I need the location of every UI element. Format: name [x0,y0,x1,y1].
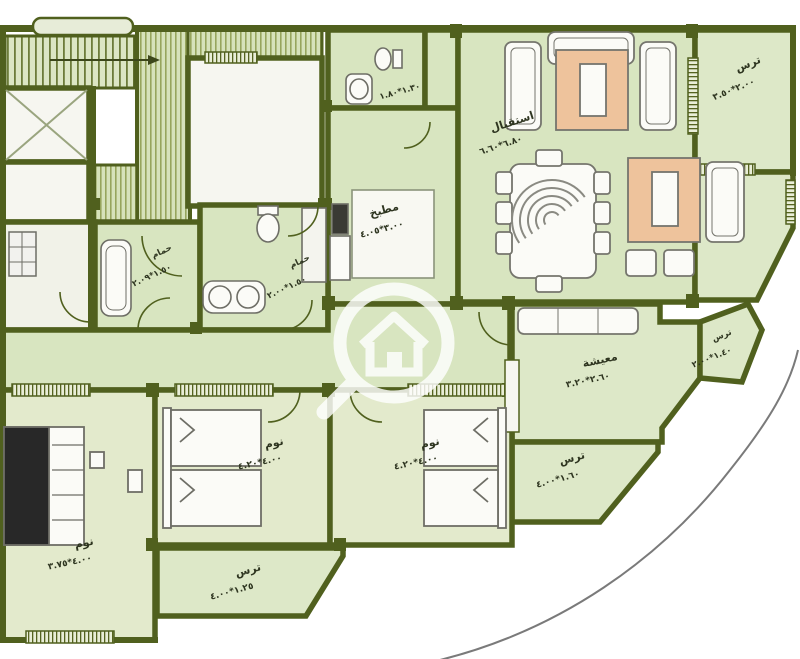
toilet-tank [393,50,402,68]
stair-treads [5,36,135,88]
pillar [146,383,159,397]
pillar [146,538,158,551]
kitchen-counter [330,236,350,280]
dining-chair [536,276,562,292]
pillar [502,296,515,310]
dining-table [510,164,596,278]
room-bath-top [328,30,425,108]
pillar [334,538,346,551]
pillar [686,294,699,308]
stool [664,250,694,276]
pillar [450,24,462,38]
window-bed-left-top [12,384,90,396]
dining-chair [594,202,610,224]
french-door-bed-right [505,360,519,432]
stool [626,250,656,276]
dining-chair [536,150,562,166]
coffee-table-top [652,172,678,226]
dining-chair [496,202,512,224]
pillar [322,296,335,310]
pillar [190,322,202,334]
pillar [320,100,332,112]
duct-shaft-top [425,30,458,108]
room-terrace-mid [512,442,658,522]
pillar [88,198,100,210]
window-bed-mid-top [175,384,273,396]
sofa [640,42,676,130]
dining-chair [496,232,512,254]
sink-bowl [350,79,368,99]
headboard [498,408,506,528]
floorplan-canvas: استقبال ٦.٨٠*٦.٦٠ مطبخ ٣.٠٠*٤.٠٥ ١.٣٠*١.… [0,0,800,659]
dining-chair [594,232,610,254]
dresser [128,470,142,492]
headboard [163,408,171,528]
nightstand [90,452,104,468]
dining-chair [594,172,610,194]
room-terrace-top-right [695,30,793,172]
window-white-bedroom [205,52,257,63]
toilet-bowl [375,48,391,70]
sink-bowl [237,286,259,308]
utility-room [3,162,89,222]
floorplan-drawing [0,0,800,659]
stair-handrail [33,18,133,35]
room-white-bedroom [188,58,322,206]
window-bed-left-bottom [26,631,114,643]
duct-column [302,208,326,282]
toilet-bowl [257,214,279,242]
bedroom-furniture [4,408,506,545]
room-terrace-right [700,304,762,382]
coffee-table-top [580,64,606,116]
window-bay-right [786,180,795,224]
watermark-house-door [387,352,402,372]
window-terrace-left [688,58,698,134]
wall-right [790,25,796,176]
kitchen-appliance [332,204,348,234]
wall-left [0,25,6,643]
pillar [450,296,463,310]
sink-bowl [209,286,231,308]
sofa [518,308,638,334]
dining-chair [496,172,512,194]
bed-blanket-dark [4,427,49,545]
pillar [686,24,698,38]
